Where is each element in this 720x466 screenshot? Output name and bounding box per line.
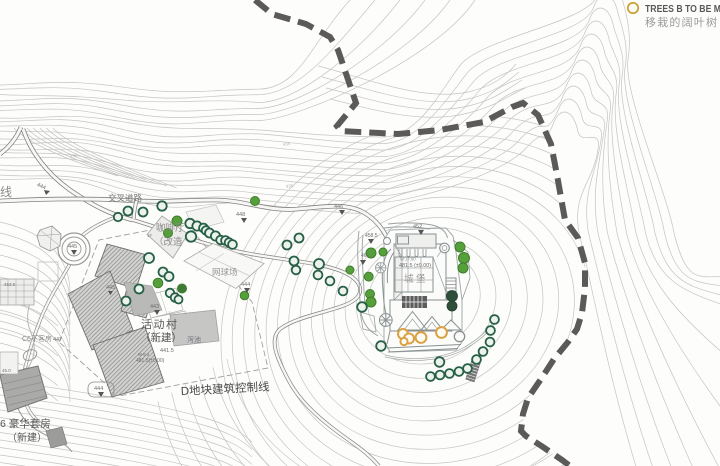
svg-text:445: 445 <box>68 244 77 250</box>
svg-text:TREES B TO BE M: TREES B TO BE M <box>645 4 720 15</box>
svg-text:445: 445 <box>106 285 115 291</box>
svg-text:444: 444 <box>241 282 250 288</box>
svg-text:（新建）: （新建） <box>7 431 47 444</box>
svg-text:461: 461 <box>361 253 370 259</box>
svg-text:441.5: 441.5 <box>160 348 174 354</box>
svg-text:W:17.60: W:17.60 <box>400 257 416 262</box>
svg-text:481.5(±0.00): 481.5(±0.00) <box>136 358 165 364</box>
svg-text:452: 452 <box>413 224 422 230</box>
svg-text:城堡: 城堡 <box>404 273 428 285</box>
svg-text:481.5 (±0.00): 481.5 (±0.00) <box>399 263 431 269</box>
svg-text:448: 448 <box>236 212 245 218</box>
svg-text:45.0: 45.0 <box>2 368 11 373</box>
svg-text:线: 线 <box>0 185 12 199</box>
svg-text:（改造: （改造 <box>154 236 183 248</box>
svg-text:458.5: 458.5 <box>365 233 378 239</box>
svg-text:（新建）: （新建） <box>140 331 182 344</box>
svg-text:交叉道路: 交叉道路 <box>108 193 143 203</box>
svg-text:447: 447 <box>53 337 62 343</box>
svg-text:6 豪华套房: 6 豪华套房 <box>0 417 51 430</box>
svg-text:C6不客房: C6不客房 <box>22 334 52 343</box>
svg-text:444: 444 <box>94 386 103 392</box>
svg-text:446: 446 <box>334 204 343 210</box>
svg-text:咖啡厅: 咖啡厅 <box>156 222 185 234</box>
svg-text:泻池: 泻池 <box>187 335 201 344</box>
svg-text:移栽的阔叶树: 移栽的阔叶树 <box>645 15 717 29</box>
svg-text:1F: 1F <box>147 233 153 238</box>
svg-text:453.0: 453.0 <box>4 282 16 287</box>
svg-text:活动村: 活动村 <box>141 317 179 331</box>
svg-text:网球场: 网球场 <box>212 267 238 277</box>
svg-text:443: 443 <box>150 304 159 310</box>
svg-text:W-8.0: W-8.0 <box>138 352 150 357</box>
